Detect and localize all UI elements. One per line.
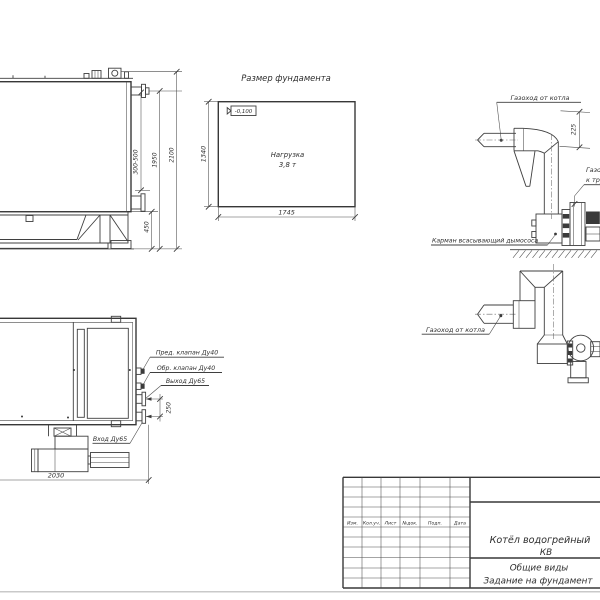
- inlet-flange: [136, 412, 142, 421]
- inlet-pipe-side: [131, 196, 141, 209]
- suction-pocket: [536, 214, 562, 243]
- exhauster-motor: [586, 212, 600, 225]
- col-koluch: Кол.уч.: [363, 521, 380, 527]
- dim-1340: 1340: [200, 146, 208, 163]
- drawing-sheet: 300-500 1950 2100 450 Размер фундамента …: [0, 0, 600, 600]
- cyclone-cone: [514, 151, 526, 187]
- col-izm: Изм.: [347, 521, 358, 527]
- flue-to-stack-label-2: к трубе: [586, 176, 600, 184]
- col-list: Лист: [384, 521, 397, 527]
- boiler-side-view: 300-500 1950 2100 450: [0, 68, 182, 252]
- flue-from-boiler-label: Газоход от котла: [510, 94, 569, 102]
- flue-to-stack-label-1: Газоход: [586, 166, 600, 174]
- product-title-2: КВ: [540, 548, 552, 558]
- load-label: Нагрузка: [271, 151, 305, 159]
- fan-plan: [568, 335, 594, 361]
- transition-box: [513, 301, 535, 329]
- access-panel: [87, 328, 128, 418]
- boiler-body-side: [0, 82, 131, 212]
- cad-canvas: 300-500 1950 2100 450 Размер фундамента …: [0, 0, 600, 600]
- product-title-1: Котёл водогрейный: [490, 535, 591, 546]
- burner-motor: [91, 453, 130, 468]
- suction-pocket-plan: [537, 344, 567, 364]
- foundation-title: Размер фундамента: [241, 73, 331, 83]
- foundation-plan: Размер фундамента -0,100 Нагрузка 3,8 т …: [200, 73, 358, 221]
- dim-adjustable: 300-500: [133, 149, 140, 174]
- safety-valve-stub: [136, 368, 141, 374]
- boiler-body-plan: [0, 318, 136, 424]
- doc-type-2: Задание на фундамент: [484, 577, 594, 587]
- col-podp: Подп.: [428, 521, 442, 527]
- leader-dot: [499, 314, 502, 317]
- burner-body: [38, 449, 88, 472]
- check-valve-stub: [136, 383, 141, 389]
- smoke-exhauster: [570, 203, 585, 246]
- load-value: 3,8 т: [279, 161, 297, 169]
- dim-2030: 2030: [48, 471, 65, 479]
- dim-450: 450: [144, 221, 151, 233]
- dim-2100: 2100: [169, 147, 176, 162]
- elevation-flag-icon: [227, 108, 231, 114]
- elbow-outer: [523, 128, 558, 141]
- outlet-label: Выход Ду65: [166, 378, 205, 385]
- safety-valve-label: Пред. клапан Ду40: [156, 350, 218, 357]
- col-data: Дата: [453, 521, 466, 527]
- dim-225: 225: [570, 124, 577, 136]
- flue-plan-view: Газоход от котла: [422, 264, 600, 383]
- dim-1950: 1950: [152, 152, 159, 167]
- outlet-flange: [136, 395, 142, 404]
- dim-250: 250: [166, 402, 173, 414]
- elevation-mark: -0,100: [235, 109, 253, 115]
- inlet-label: Вход Ду65: [93, 436, 127, 443]
- support-frame: [0, 212, 128, 243]
- dim-ticks: [206, 99, 358, 220]
- flue-plan-label: Газоход от котла: [426, 326, 485, 334]
- check-valve-label: Обр. клапан Ду40: [157, 364, 215, 372]
- pocket-label: Карман всасывающий дымососа: [432, 238, 538, 245]
- leader-dot: [554, 233, 557, 236]
- col-ndok: №док.: [402, 521, 418, 527]
- flue-elevation-view: Газоход от котла 225: [431, 94, 600, 258]
- lifting-lug: [109, 68, 122, 78]
- title-block: Изм. Кол.уч. Лист №док. Подп. Дата Котёл…: [343, 477, 600, 588]
- doc-type-1: Общие виды: [510, 564, 569, 574]
- ground-hatch: [513, 250, 597, 258]
- boiler-plan-view: Пред. клапан Ду40 Обр. клапан Ду40 Выход…: [0, 316, 224, 484]
- dim-1745: 1745: [278, 209, 295, 217]
